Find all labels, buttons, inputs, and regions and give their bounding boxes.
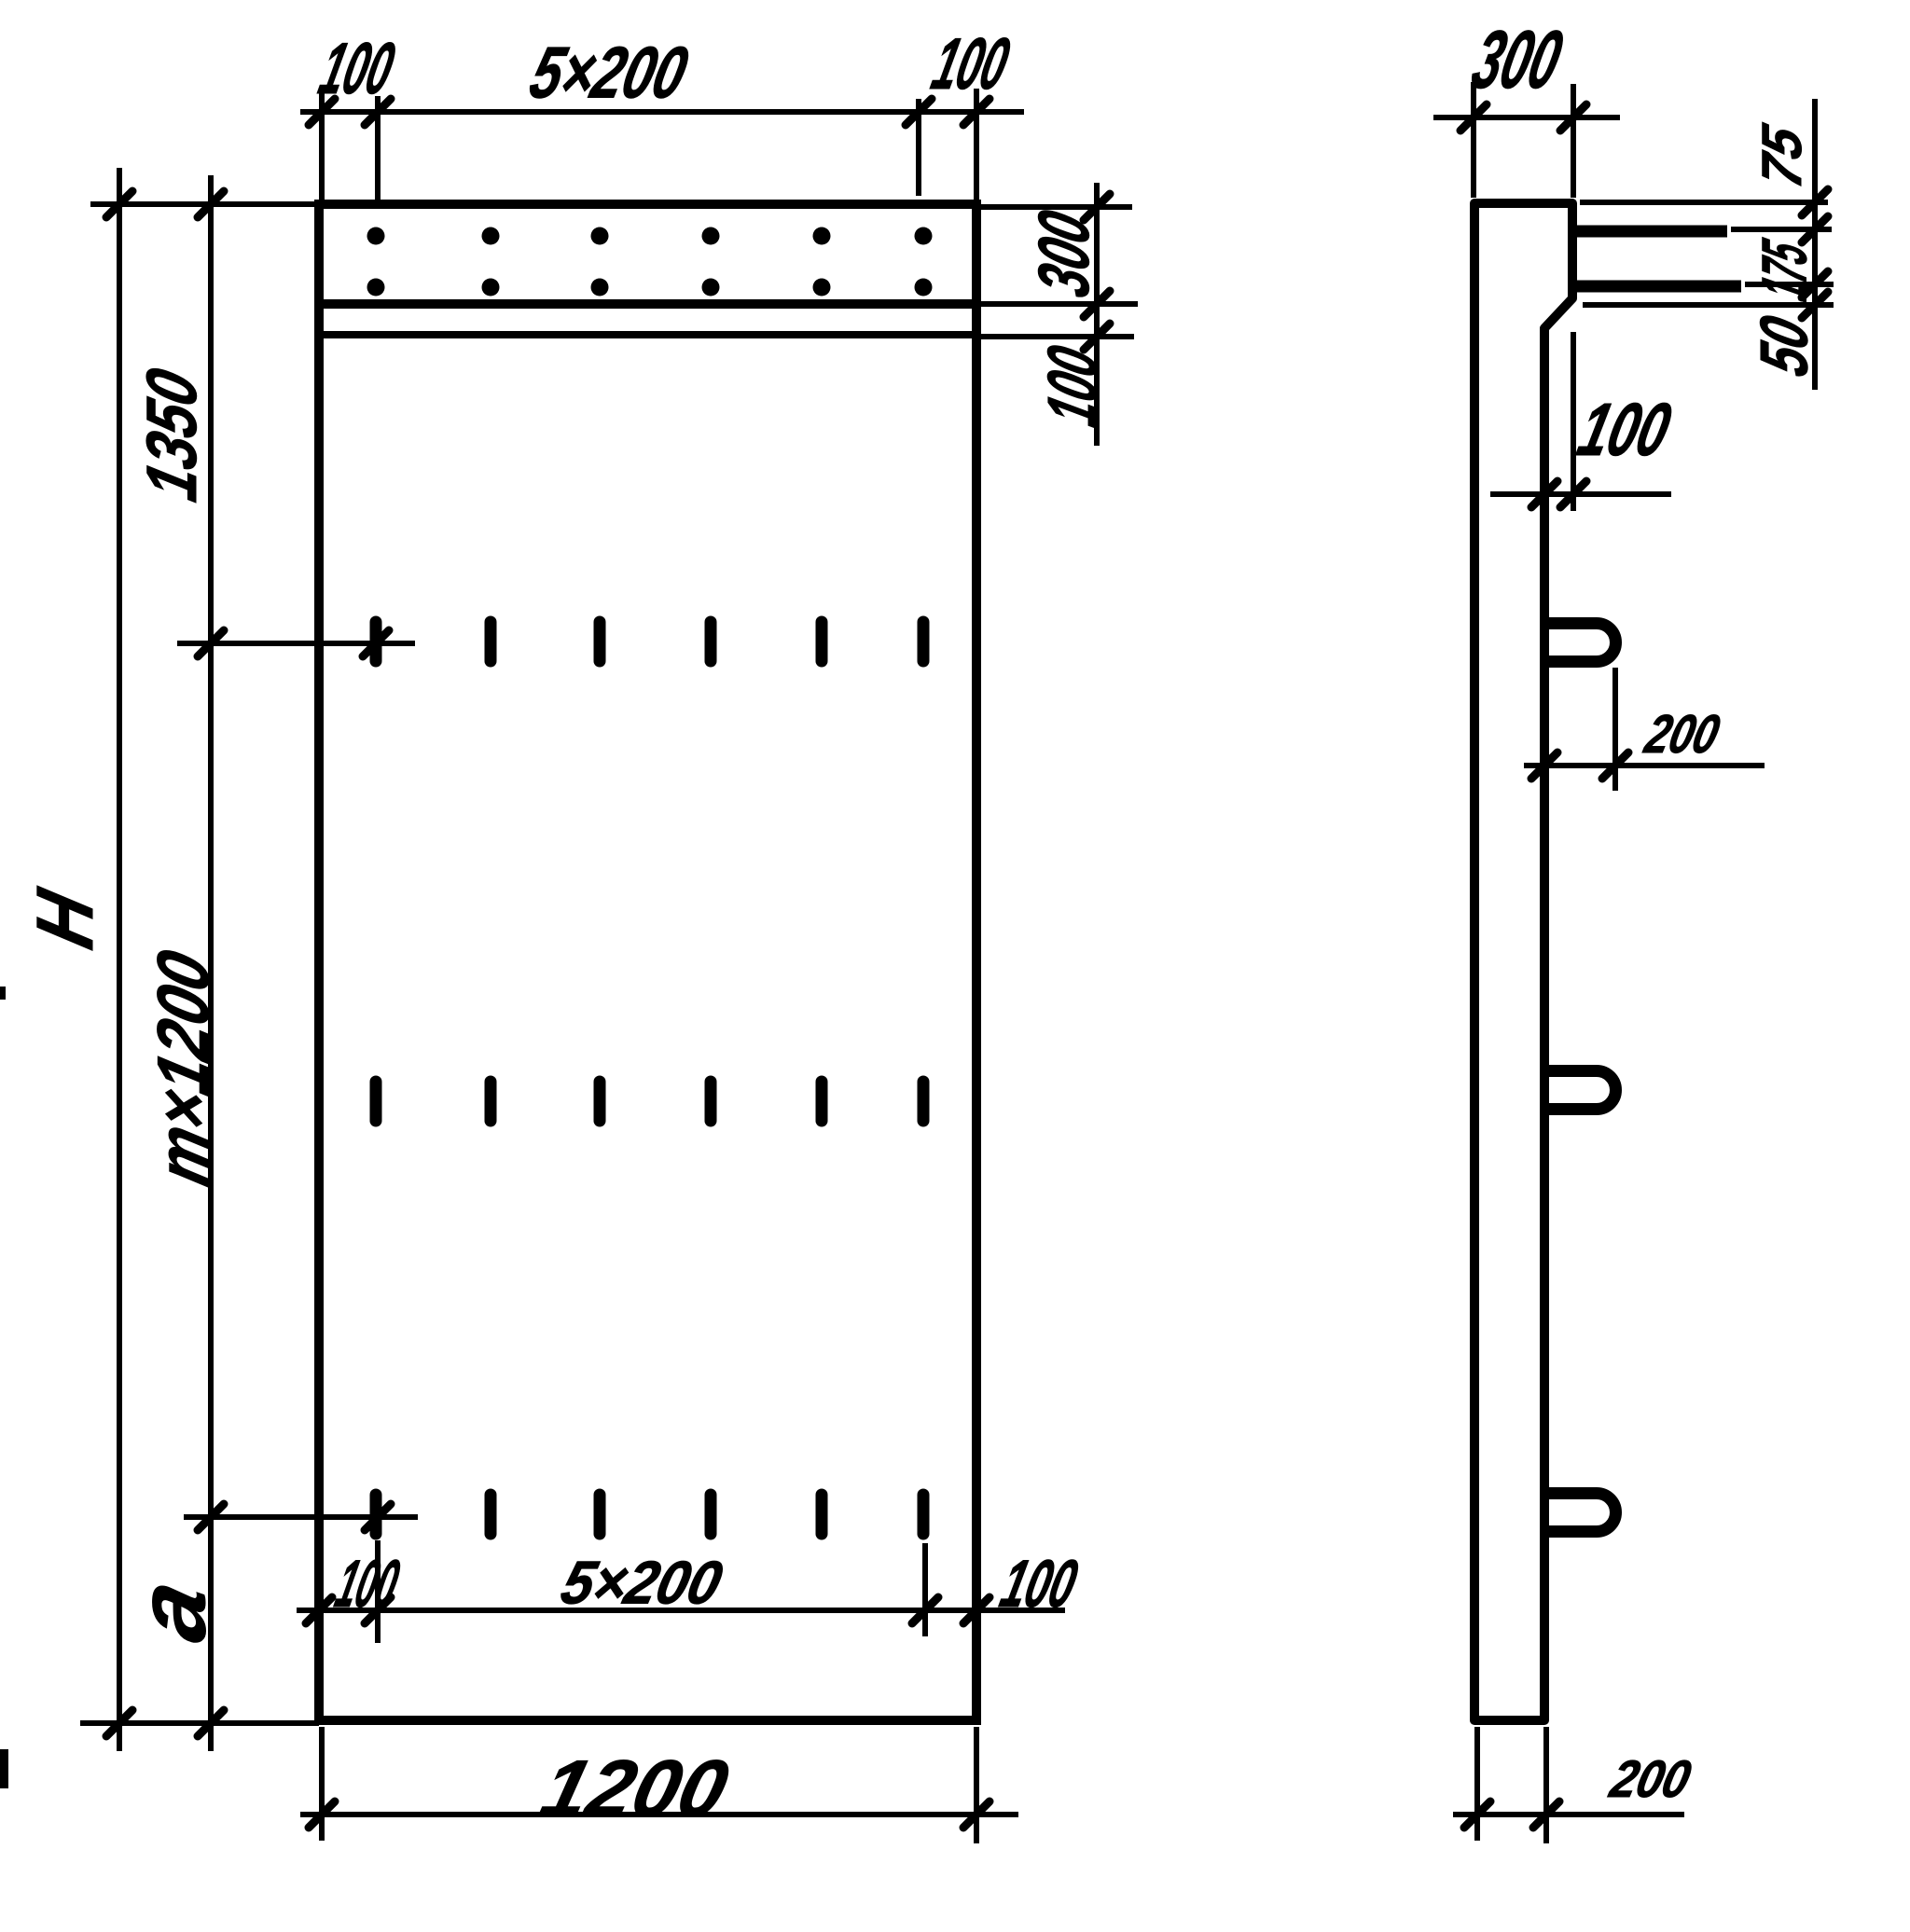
svg-text:1200: 1200 <box>533 1744 737 1834</box>
svg-text:200: 200 <box>1604 1750 1696 1809</box>
svg-text:100: 100 <box>994 1547 1085 1621</box>
svg-text:300: 300 <box>1464 14 1571 105</box>
svg-text:1350: 1350 <box>132 362 212 507</box>
svg-text:300: 300 <box>1024 203 1104 304</box>
svg-text:100: 100 <box>1571 387 1679 471</box>
svg-text:5×200: 5×200 <box>523 33 696 114</box>
svg-text:100: 100 <box>1033 338 1112 433</box>
svg-text:H: H <box>21 881 110 956</box>
svg-text:m×1200: m×1200 <box>142 943 224 1192</box>
svg-text:200: 200 <box>1639 705 1724 766</box>
svg-text:50: 50 <box>1747 310 1822 383</box>
svg-text:75: 75 <box>1751 119 1813 194</box>
svg-text:100: 100 <box>925 23 1017 104</box>
svg-text:5×200: 5×200 <box>555 1550 728 1617</box>
svg-text:175: 175 <box>1749 233 1820 307</box>
